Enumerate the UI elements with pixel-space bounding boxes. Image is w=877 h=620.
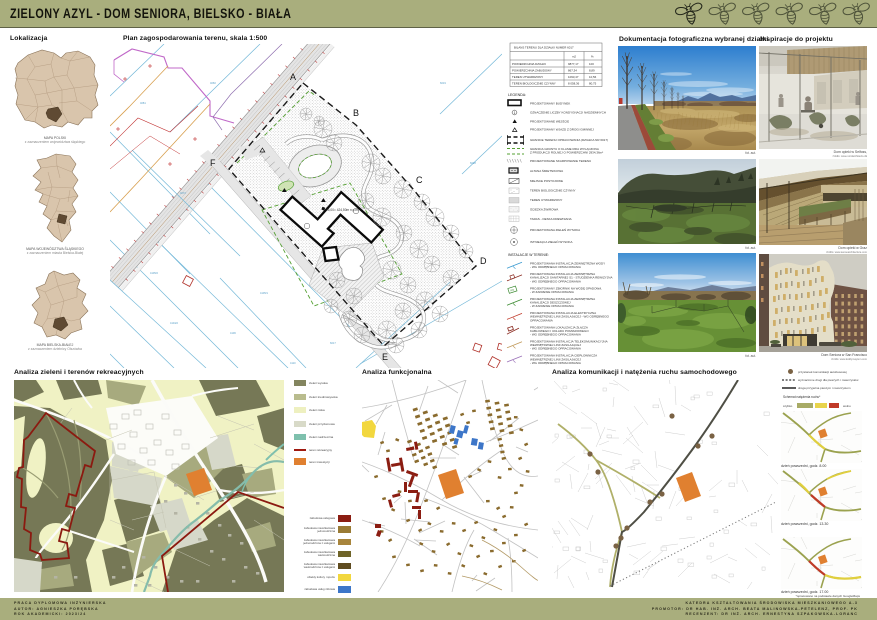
svg-text:GRANICE TERENU OPRACOWANIA (DZ: GRANICE TERENU OPRACOWANIA (DZIAŁKA NR 6… xyxy=(530,138,608,142)
svg-text:B: B xyxy=(353,108,359,118)
svg-text:PROJEKTOWANY WJAZD Z DROGI GMI: PROJEKTOWANY WJAZD Z DROGI GMINNEJ xyxy=(530,128,594,132)
svg-text:POWIERZCHNIA DZIAŁKI: POWIERZCHNIA DZIAŁKI xyxy=(512,62,546,66)
svg-text:TEREN BIOLOGICZNIE CZYNNY: TEREN BIOLOGICZNIE CZYNNY xyxy=(530,189,576,193)
svg-text:- WG ODRĘBNEGO OPRACOWANIA: - WG ODRĘBNEGO OPRACOWANIA xyxy=(530,361,581,365)
svg-text:BILANS TERENU DLA DZIAŁKI NUME: BILANS TERENU DLA DZIAŁKI NUMER 6017 xyxy=(514,46,574,50)
svg-text:- W ZAKRESIE OPRACOWANIA: - W ZAKRESIE OPRACOWANIA xyxy=(530,290,574,294)
svg-text:ALTANA ŚMIETNIKOWA: ALTANA ŚMIETNIKOWA xyxy=(530,168,563,173)
svg-text:9877,17: 9877,17 xyxy=(568,62,579,66)
svg-text:PROJEKTOWANA ZIELEŃ WYSOKA: PROJEKTOWANA ZIELEŃ WYSOKA xyxy=(530,228,580,232)
svg-text:OPRACOWANIA: OPRACOWANIA xyxy=(530,318,553,322)
svg-text:D: D xyxy=(480,256,487,266)
svg-text:8 058,36: 8 058,36 xyxy=(568,82,580,86)
svg-text:4105/2: 4105/2 xyxy=(150,271,158,275)
svg-text:TEREN UTWARDZONY: TEREN UTWARDZONY xyxy=(530,198,562,202)
svg-text:F: F xyxy=(210,158,216,168)
svg-text:ŚCIEŻKA ŻWIROWA: ŚCIEŻKA ŻWIROWA xyxy=(530,207,558,212)
svg-text:4072: 4072 xyxy=(180,191,186,195)
svg-text:4106: 4106 xyxy=(230,331,236,335)
svg-text:- WG ODRĘBNEGO OPRACOWANIA: - WG ODRĘBNEGO OPRACOWANIA xyxy=(530,279,581,283)
svg-text:PROJEKTOWANE SKARPOWANIE TEREN: PROJEKTOWANE SKARPOWANIE TERENU xyxy=(530,159,591,163)
svg-text:6018: 6018 xyxy=(470,161,476,165)
svg-text:A: A xyxy=(290,72,296,82)
svg-text:- W ZAKRESIE OPRACOWANIA: - W ZAKRESIE OPRACOWANIA xyxy=(530,304,574,308)
svg-text:1093,47: 1093,47 xyxy=(568,75,579,79)
svg-text:8,89: 8,89 xyxy=(589,69,595,73)
svg-text:ISTNIEJĄCA ZIELEŃ WYSOKA: ISTNIEJĄCA ZIELEŃ WYSOKA xyxy=(530,240,573,244)
svg-text:TARAS - DESKA DREWNIANA: TARAS - DESKA DREWNIANA xyxy=(530,217,572,221)
svg-text:INSTALACJE W TERENIE:: INSTALACJE W TERENIE: xyxy=(508,253,549,257)
svg-text:%: % xyxy=(591,55,594,59)
svg-text:4104/2: 4104/2 xyxy=(170,321,178,325)
svg-text:80,75: 80,75 xyxy=(589,82,597,86)
svg-text:POWIERZCHNIA ZABUDOWY: POWIERZCHNIA ZABUDOWY xyxy=(512,69,552,73)
svg-text:LEGENDA:: LEGENDA: xyxy=(508,93,526,97)
svg-text:PROJEKTOWANY BUDYNEK: PROJEKTOWANY BUDYNEK xyxy=(530,102,570,106)
svg-text:6017: 6017 xyxy=(330,341,336,345)
svg-text:MIEJSCE POSTOJOWE: MIEJSCE POSTOJOWE xyxy=(530,179,563,183)
svg-text:10,56: 10,56 xyxy=(589,75,597,79)
svg-text:TEREN BIOLOGICZNIE CZYNNY: TEREN BIOLOGICZNIE CZYNNY xyxy=(512,82,556,86)
svg-text:4081: 4081 xyxy=(140,101,146,105)
svg-text:TEREN UTWARDZONY: TEREN UTWARDZONY xyxy=(512,75,543,79)
svg-text:m2: m2 xyxy=(572,55,576,59)
svg-text:- WG ODRĘBNEGO OPRACOWANIA: - WG ODRĘBNEGO OPRACOWANIA xyxy=(530,347,581,351)
svg-text:4105/1: 4105/1 xyxy=(260,291,268,295)
svg-text:4060: 4060 xyxy=(210,81,216,85)
svg-text:OZNACZENIE LICZBY KONDYGNACJI: OZNACZENIE LICZBY KONDYGNACJI NADZIEMNYC… xyxy=(530,111,606,115)
svg-text:- WG ODRĘBNEGO OPRACOWANIA: - WG ODRĘBNEGO OPRACOWANIA xyxy=(530,265,581,269)
svg-text:867,34: 867,34 xyxy=(568,69,577,73)
svg-text:1: 1 xyxy=(514,111,516,115)
svg-text:100: 100 xyxy=(589,62,594,66)
svg-text:25,00= 424,50m n.p.m.: 25,00= 424,50m n.p.m. xyxy=(326,208,359,212)
svg-text:E: E xyxy=(382,352,388,362)
svg-text:4110: 4110 xyxy=(290,361,296,365)
svg-text:PROJEKTOWANE WEJŚCIE: PROJEKTOWANE WEJŚCIE xyxy=(530,119,569,124)
svg-text:C: C xyxy=(416,175,423,185)
svg-text:Z PRODUKCJI ROLNEJ O POWIERZCH: Z PRODUKCJI ROLNEJ O POWIERZCHNI 2934,36… xyxy=(530,151,603,155)
svg-text:- WG ODRĘBNEGO OPRACOWANIA: - WG ODRĘBNEGO OPRACOWANIA xyxy=(530,333,581,337)
svg-text:6019: 6019 xyxy=(440,81,446,85)
